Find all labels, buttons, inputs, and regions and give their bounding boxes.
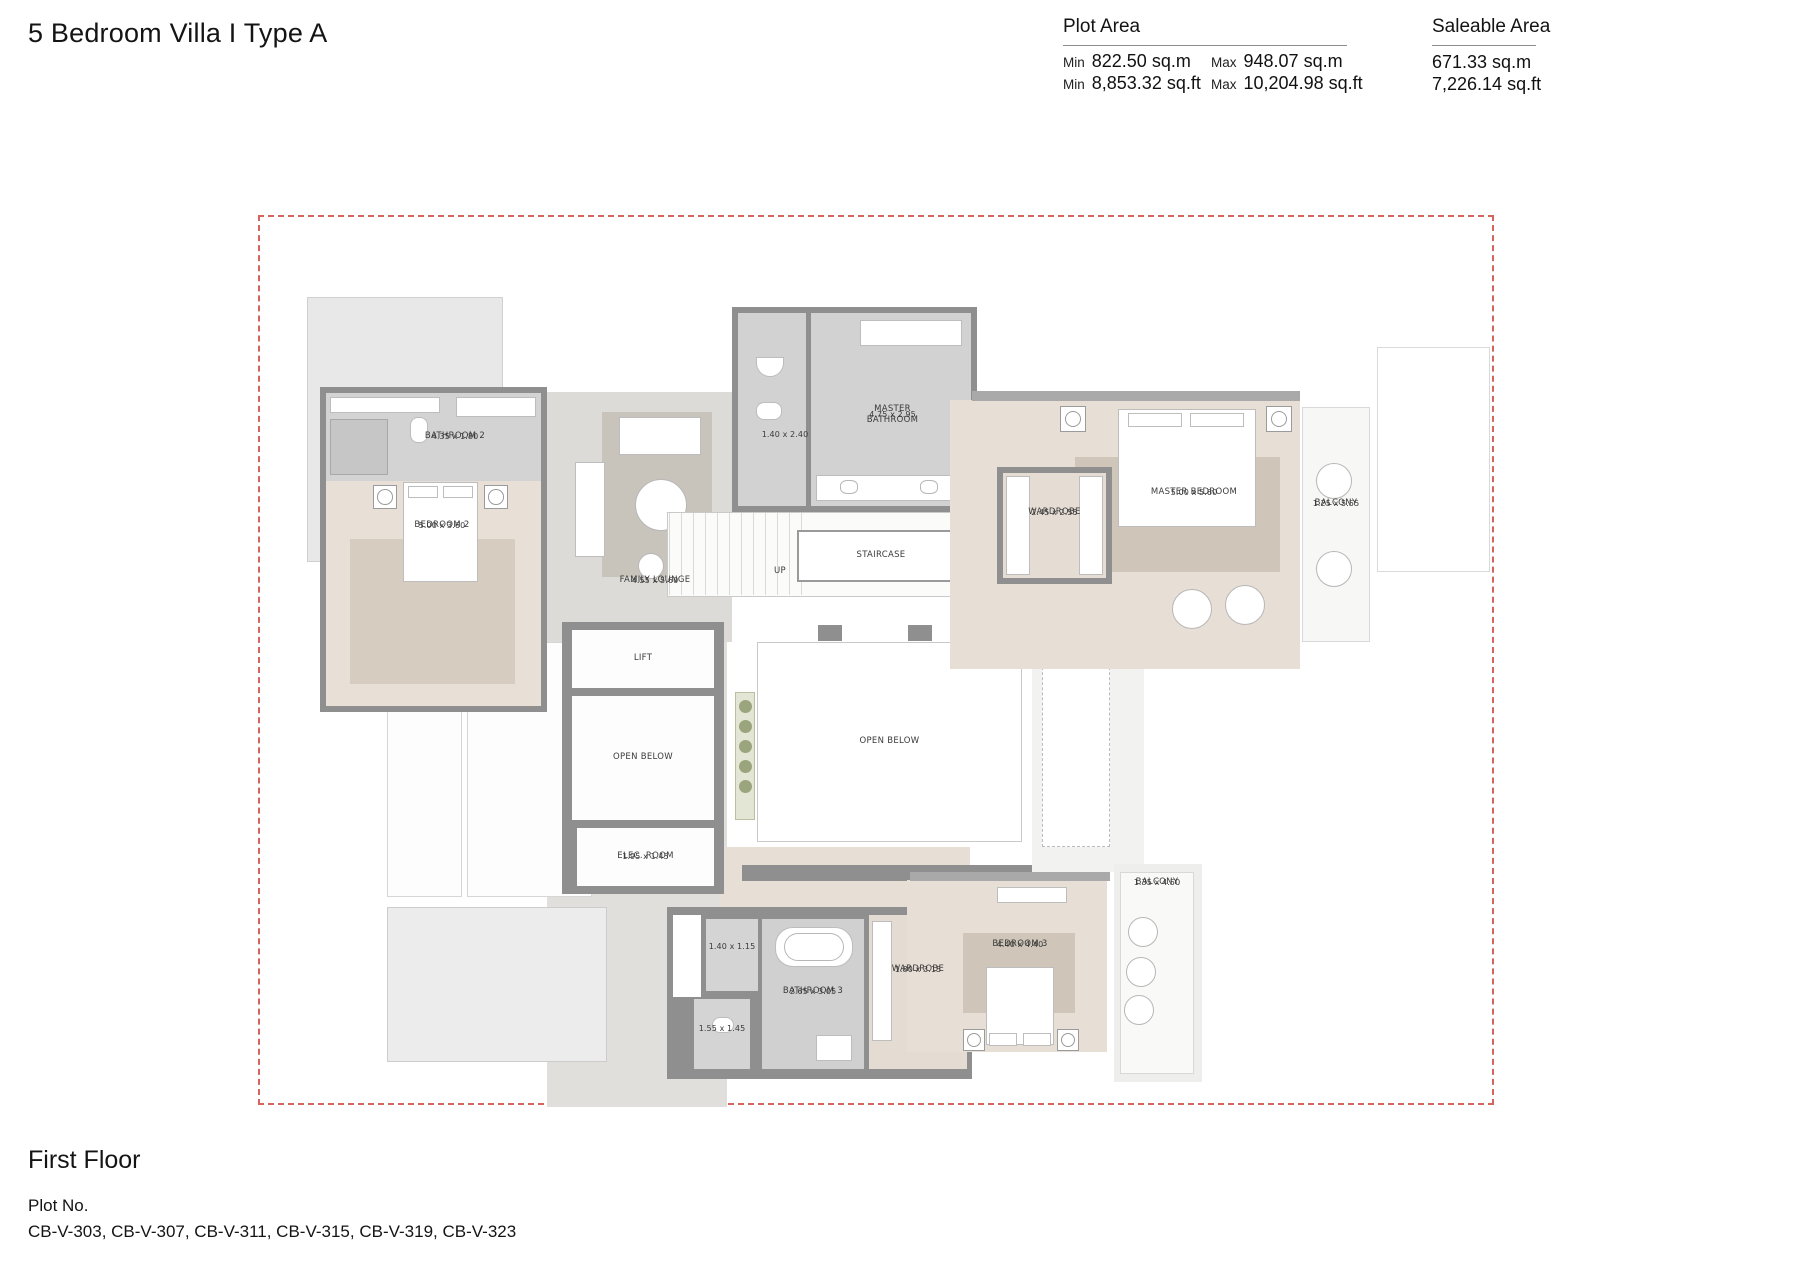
column-post bbox=[373, 485, 397, 509]
powder-toilet bbox=[756, 402, 782, 420]
nightstand bbox=[989, 1033, 1017, 1046]
skylight-void bbox=[1042, 657, 1110, 847]
room-label-elec-room: ELEC. ROOM 1.95 x 1.45 bbox=[577, 828, 714, 886]
plant-icon bbox=[739, 760, 752, 773]
master-balcony-floor bbox=[1302, 407, 1370, 642]
partition-wall bbox=[806, 313, 811, 506]
wardrobe-cabinet bbox=[872, 921, 892, 1041]
saleable-area-values: 671.33 sq.m 7,226.14 sq.ft bbox=[1432, 51, 1536, 95]
double-vanity bbox=[816, 475, 968, 501]
bathroom3-sink bbox=[816, 1035, 852, 1061]
room-label-staircase: STAIRCASE bbox=[797, 530, 965, 582]
column-post bbox=[1266, 406, 1292, 432]
armchair bbox=[1225, 585, 1265, 625]
planter-pot bbox=[1316, 551, 1352, 587]
plant-icon bbox=[739, 780, 752, 793]
plot-no-heading: Plot No. bbox=[28, 1196, 88, 1216]
room-label-lift: LIFT bbox=[572, 630, 714, 688]
saleable-sqft: 7,226.14 sq.ft bbox=[1432, 73, 1536, 95]
planter-pot bbox=[1128, 917, 1158, 947]
armchair bbox=[1172, 589, 1212, 629]
wc-floor bbox=[706, 919, 758, 991]
nightstand bbox=[1023, 1033, 1051, 1046]
room-label-open-below-left: OPEN BELOW bbox=[572, 696, 714, 820]
plot-area-block: Plot Area Min 822.50 sq.m Max 948.07 sq.… bbox=[1063, 16, 1347, 94]
column-post bbox=[484, 485, 508, 509]
planter-pot bbox=[1124, 995, 1154, 1025]
linen-closet bbox=[673, 915, 701, 997]
sink bbox=[920, 480, 938, 494]
wall-stub bbox=[818, 625, 842, 641]
planter-pot bbox=[1316, 463, 1352, 499]
bathroom2-counter bbox=[330, 397, 440, 413]
plot-area-heading: Plot Area bbox=[1063, 16, 1347, 46]
plant-icon bbox=[739, 720, 752, 733]
roof-terrace-bottom-left bbox=[387, 907, 607, 1062]
saleable-area-heading: Saleable Area bbox=[1432, 16, 1536, 46]
sofa bbox=[619, 417, 701, 455]
column-post bbox=[963, 1029, 985, 1051]
sink bbox=[840, 480, 858, 494]
exterior-wall bbox=[910, 872, 1110, 881]
plant-icon bbox=[739, 740, 752, 753]
planter-pot bbox=[1126, 957, 1156, 987]
bathtub-basin bbox=[784, 933, 844, 961]
plot-area-max-sqm: Max 948.07 sq.m bbox=[1211, 51, 1363, 72]
dresser bbox=[997, 887, 1067, 903]
page-title: 5 Bedroom Villa I Type A bbox=[28, 18, 327, 49]
wall-stub bbox=[908, 625, 932, 641]
saleable-sqm: 671.33 sq.m bbox=[1432, 51, 1536, 73]
wardrobe-cabinet bbox=[1006, 476, 1030, 575]
floor-plan: BATHROOM 2 4.35 x 1.80 BEDROOM 2 5.00 x … bbox=[258, 215, 1494, 1105]
sofa bbox=[575, 462, 605, 557]
floor-name: First Floor bbox=[28, 1146, 141, 1175]
plot-numbers: CB-V-303, CB-V-307, CB-V-311, CB-V-315, … bbox=[28, 1222, 516, 1242]
planter bbox=[735, 692, 755, 820]
exterior-wall bbox=[972, 391, 1300, 401]
pillow bbox=[1128, 413, 1182, 427]
shower bbox=[330, 419, 388, 475]
saleable-area-block: Saleable Area 671.33 sq.m 7,226.14 sq.ft bbox=[1432, 16, 1536, 95]
plot-area-values: Min 822.50 sq.m Max 948.07 sq.m Min 8,85… bbox=[1063, 51, 1347, 94]
column-post bbox=[1057, 1029, 1079, 1051]
room-label-open-below-center: OPEN BELOW bbox=[757, 642, 1022, 842]
master-bath-closet bbox=[860, 320, 962, 346]
plot-area-max-sqft: Max 10,204.98 sq.ft bbox=[1211, 73, 1363, 94]
pillow bbox=[408, 486, 438, 498]
pergola-top-right bbox=[1377, 347, 1490, 572]
bathroom2-sink bbox=[456, 397, 536, 417]
plot-area-min-sqm: Min 822.50 sq.m bbox=[1063, 51, 1211, 72]
column-post bbox=[1060, 406, 1086, 432]
wardrobe-cabinet bbox=[1079, 476, 1103, 575]
plot-area-min-sqft: Min 8,853.32 sq.ft bbox=[1063, 73, 1211, 94]
pillow bbox=[1190, 413, 1244, 427]
pillow bbox=[443, 486, 473, 498]
plant-icon bbox=[739, 700, 752, 713]
